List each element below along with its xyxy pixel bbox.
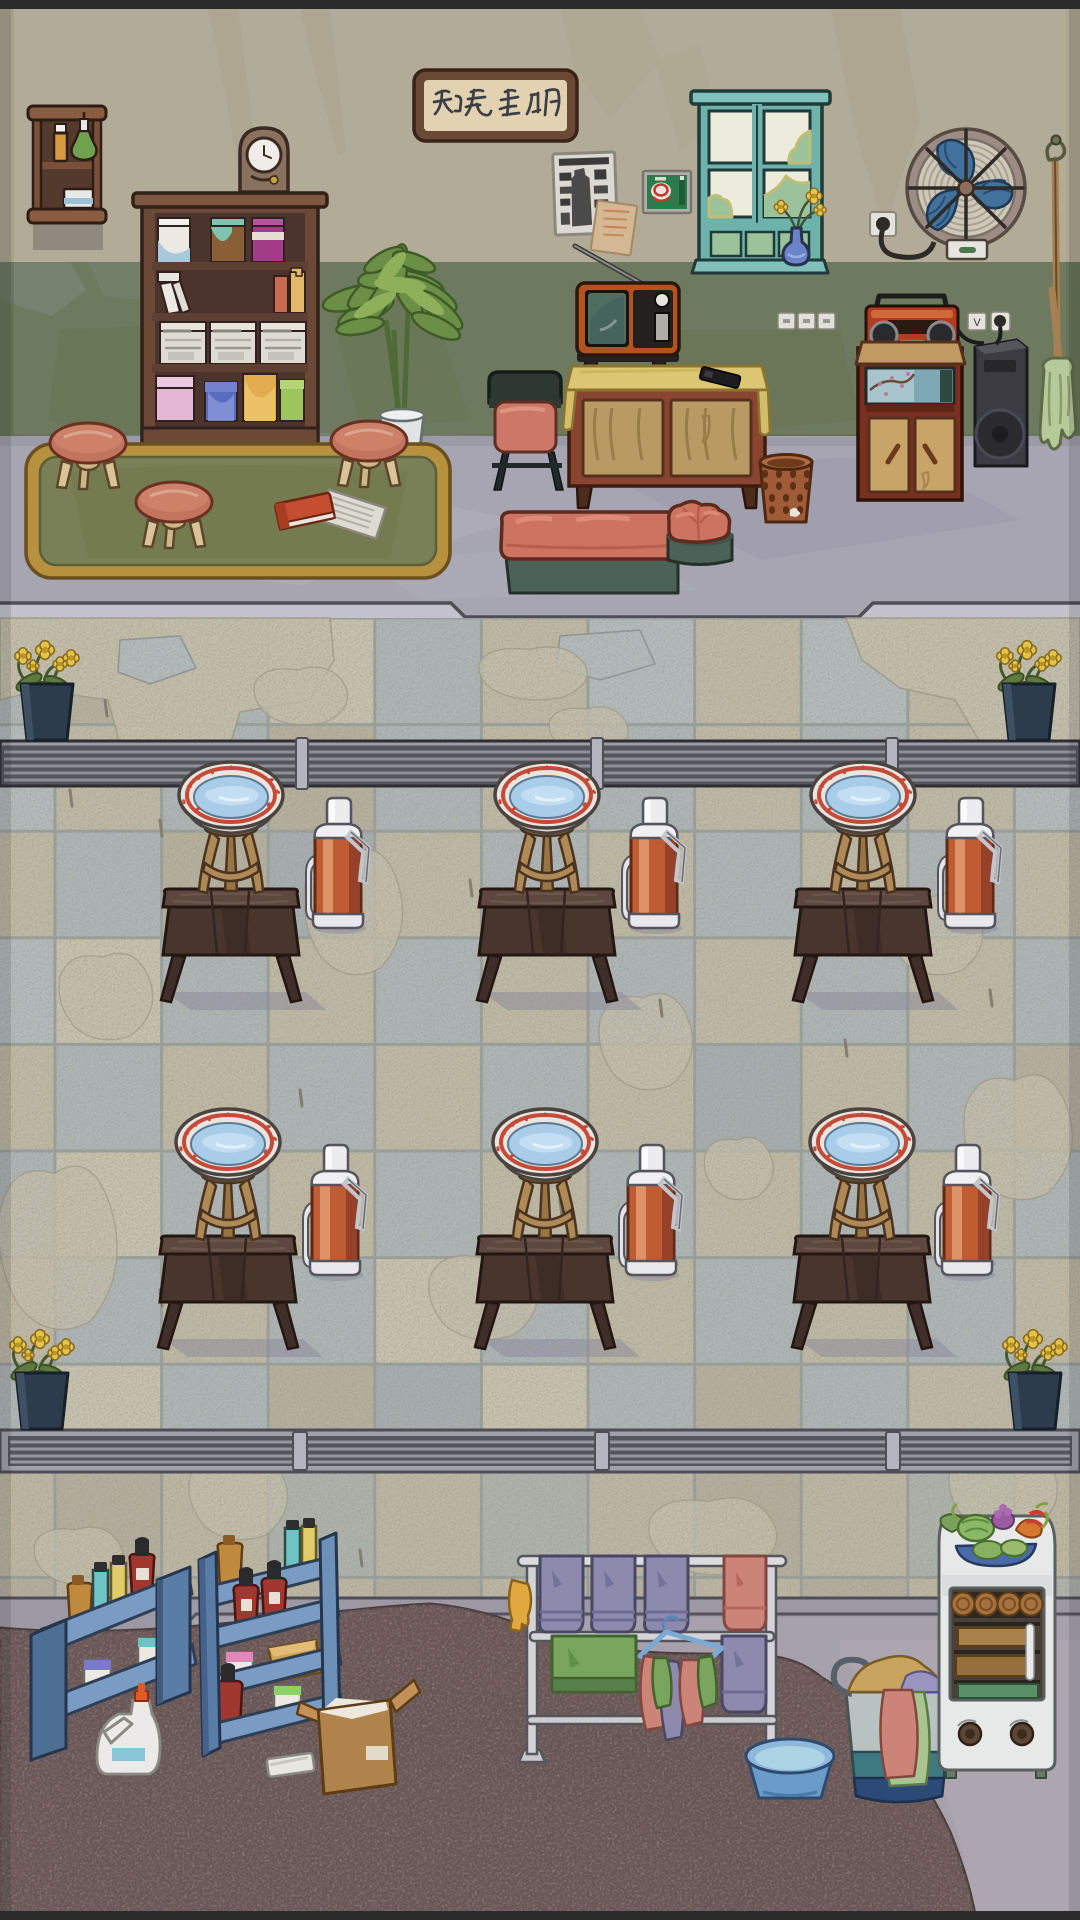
svg-text:V: V — [973, 317, 981, 329]
